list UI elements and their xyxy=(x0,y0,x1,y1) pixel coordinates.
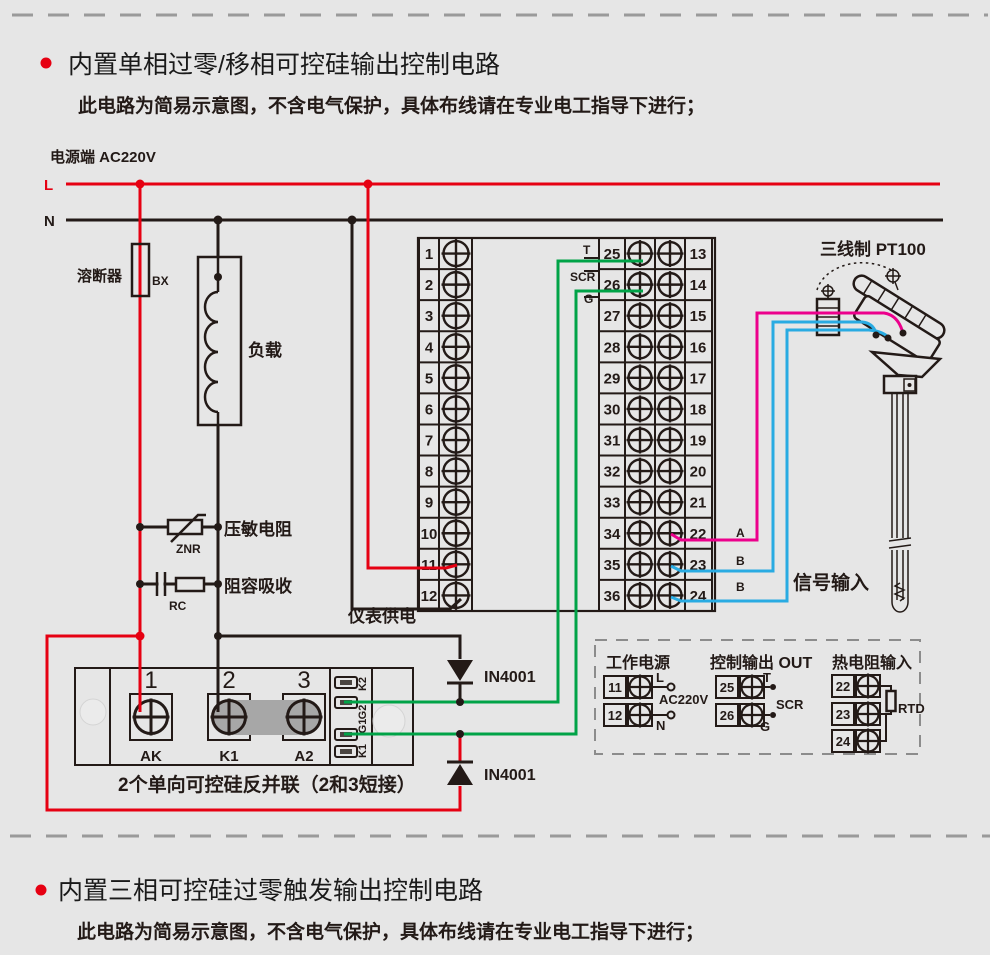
screw-terminal-icon xyxy=(627,520,654,547)
junction-dot xyxy=(364,180,373,189)
terminal-number-mid: 36 xyxy=(604,588,621,605)
terminal-number-right: 18 xyxy=(690,401,707,418)
legend-scr-label: SCR xyxy=(776,697,804,712)
screw-terminal-icon xyxy=(657,302,684,329)
signal-a-label: A xyxy=(736,526,745,540)
junction-dot xyxy=(214,580,222,588)
screw-terminal-icon xyxy=(657,582,684,609)
wires-layer xyxy=(47,184,943,810)
section1-bullet-icon xyxy=(41,58,52,69)
power-source-label: 电源端 AC220V xyxy=(50,148,156,166)
terminal-number-mid: 27 xyxy=(604,308,621,325)
scr-module: 1 2 3 AK K1 A2 K2 G2 G1 K1 xyxy=(75,667,413,765)
screw-terminal-icon xyxy=(442,519,471,548)
module-terminal-2: 2 xyxy=(222,667,235,694)
fuse-code-label: BX xyxy=(152,274,169,288)
junction-dot xyxy=(348,216,357,225)
screw-terminal-icon xyxy=(821,284,835,298)
screw-terminal-icon xyxy=(442,239,471,268)
signal-b2-label: B xyxy=(736,580,745,594)
rc-snubber-icon xyxy=(157,572,204,596)
screw-terminal-icon xyxy=(856,729,881,754)
junction-dot xyxy=(873,332,880,339)
terminal-number-left: 2 xyxy=(425,277,433,294)
section2-title: 内置三相可控硅过零触发输出控制电路 xyxy=(58,877,483,905)
section2-subtitle: 此电路为简易示意图，不含电气保护，具体布线请在专业电工指导下进行； xyxy=(77,920,704,943)
legend-rtd-title: 热电阻输入 xyxy=(832,653,912,672)
line-n-label: N xyxy=(44,213,55,230)
screw-terminal-icon xyxy=(627,271,654,298)
screw-terminal-icon xyxy=(627,458,654,485)
screw-terminal-icon xyxy=(856,674,881,699)
junction-dot xyxy=(456,730,464,738)
terminal-number-left: 6 xyxy=(425,401,433,418)
screw-terminal-icon xyxy=(657,364,684,391)
terminal-number-right: 14 xyxy=(690,277,707,294)
terminal-number-left: 10 xyxy=(421,526,438,543)
screw-terminal-icon xyxy=(657,395,684,422)
junction-dot xyxy=(214,632,222,640)
module-ak-label: AK xyxy=(140,748,162,765)
module-mount-hole xyxy=(373,705,405,737)
terminal-number-left: 11 xyxy=(421,557,437,574)
screw-terminal-icon xyxy=(627,551,654,578)
screw-terminal-icon xyxy=(657,240,684,267)
diode1-label: IN4001 xyxy=(484,669,536,686)
terminal-number-mid: 28 xyxy=(604,339,621,356)
screw-terminal-icon xyxy=(856,702,881,727)
screw-terminal-icon xyxy=(627,395,654,422)
module-k1-label: K1 xyxy=(219,748,238,765)
terminal-number-mid: 32 xyxy=(604,464,621,481)
screw-terminal-icon xyxy=(627,333,654,360)
legend-voltage-label: AC220V xyxy=(659,692,708,707)
screw-terminal-icon xyxy=(657,271,684,298)
screw-terminal-icon xyxy=(657,520,684,547)
screw-terminal-icon xyxy=(442,426,471,455)
screw-terminal-icon xyxy=(442,488,471,517)
legend-t-label: T xyxy=(763,670,771,685)
screw-terminal-icon xyxy=(442,457,471,486)
screw-terminal-icon xyxy=(442,363,471,392)
load-label: 负载 xyxy=(248,340,282,360)
terminal-number-mid: 34 xyxy=(604,526,621,543)
section2-bullet-icon xyxy=(36,885,47,896)
module-terminal-1: 1 xyxy=(144,667,157,694)
screw-terminal-icon xyxy=(740,675,765,700)
signal-input-label: 信号输入 xyxy=(793,571,869,594)
varistor-icon xyxy=(168,515,206,542)
legend-term-24: 24 xyxy=(836,734,851,749)
wire-diode1-branch xyxy=(218,636,460,659)
legend-term-26: 26 xyxy=(720,708,734,723)
junction-dot xyxy=(136,580,144,588)
terminal-number-right: 20 xyxy=(690,464,707,481)
diode1-icon xyxy=(447,660,473,683)
screw-terminal-icon xyxy=(442,394,471,423)
junction-dot xyxy=(900,330,907,337)
terminal-number-left: 1 xyxy=(425,246,433,263)
screw-terminal-icon xyxy=(628,675,653,700)
legend-output-title: 控制输出 OUT xyxy=(710,653,812,672)
terminal-number-right: 17 xyxy=(690,370,707,387)
terminal-number-right: 19 xyxy=(690,433,707,450)
output-scr-label: SCR xyxy=(570,270,596,284)
diode2-icon xyxy=(447,762,473,785)
legend-term-12: 12 xyxy=(608,708,622,723)
line-l-label: L xyxy=(44,177,53,194)
legend-n-terminal-icon xyxy=(668,712,675,719)
section1-title: 内置单相过零/移相可控硅输出控制电路 xyxy=(68,51,500,79)
terminal-number-left: 12 xyxy=(421,588,438,605)
rc-code-label: RC xyxy=(169,599,187,613)
output-g-label: G xyxy=(584,292,593,306)
terminal-number-right: 15 xyxy=(690,308,707,325)
diagram-static-layer: 内置单相过零/移相可控硅输出控制电路 此电路为简易示意图，不含电气保护，具体布线… xyxy=(10,15,990,943)
junction-dot xyxy=(456,698,464,706)
circuit-diagram: 内置单相过零/移相可控硅输出控制电路 此电路为简易示意图，不含电气保护，具体布线… xyxy=(0,0,990,955)
module-g1-label: G1 xyxy=(357,719,369,734)
terminal-number-mid: 30 xyxy=(604,401,621,418)
signal-b1-label: B xyxy=(736,554,745,568)
terminal-number-right: 16 xyxy=(690,339,707,356)
terminal-number-mid: 33 xyxy=(604,495,621,512)
junction-dot xyxy=(136,180,145,189)
varistor-code-label: ZNR xyxy=(176,542,201,556)
terminal-number-right: 13 xyxy=(690,246,707,263)
terminal-number-mid: 29 xyxy=(604,370,621,387)
rc-label: 阻容吸收 xyxy=(224,576,292,596)
wiring-diagram-page: 内置单相过零/移相可控硅输出控制电路 此电路为简易示意图，不含电气保护，具体布线… xyxy=(0,0,990,955)
screw-terminal-icon xyxy=(885,268,901,284)
output-t-label: T xyxy=(583,243,591,257)
screw-terminal-icon xyxy=(627,240,654,267)
screw-terminal-icon xyxy=(627,489,654,516)
module-k1-side-label: K1 xyxy=(357,744,369,758)
module-a2-label: A2 xyxy=(294,748,313,765)
legend-l-label: L xyxy=(656,670,664,685)
module-screws xyxy=(133,699,323,736)
legend-rtd-label: RTD xyxy=(898,701,925,716)
main-terminal-block: 1251322614327154281652917630187311983220… xyxy=(418,238,715,611)
legend-n-label: N xyxy=(656,718,665,733)
screw-terminal-icon xyxy=(657,551,684,578)
junction-dot xyxy=(136,523,144,531)
fuse-label: 溶断器 xyxy=(77,267,123,285)
section1-subtitle: 此电路为简易示意图，不含电气保护，具体布线请在专业电工指导下进行； xyxy=(78,94,705,117)
sensor-probe xyxy=(889,393,911,612)
legend-term-25: 25 xyxy=(720,680,734,695)
terminal-number-left: 9 xyxy=(425,495,433,512)
junction-dot xyxy=(214,523,222,531)
legend-term-11: 11 xyxy=(608,680,622,695)
terminal-number-mid: 31 xyxy=(604,433,621,450)
screw-terminal-icon xyxy=(627,302,654,329)
terminal-number-left: 4 xyxy=(425,339,434,356)
screw-terminal-icon xyxy=(627,582,654,609)
module-k2-label: K2 xyxy=(357,677,369,691)
load-inductor-icon xyxy=(198,257,241,425)
resistor-icon xyxy=(176,578,204,591)
screw-terminal-icon xyxy=(133,699,170,736)
junction-dot xyxy=(885,335,892,342)
terminal-number-left: 5 xyxy=(425,370,433,387)
pt100-title: 三线制 PT100 xyxy=(820,239,926,259)
screw-terminal-icon xyxy=(657,427,684,454)
legend-panel: 工作电源 控制输出 OUT 热电阻输入 11 12 L AC220V N 25 … xyxy=(595,640,925,754)
terminal-number-mid: 35 xyxy=(604,557,621,574)
module-caption: 2个单向可控硅反并联（2和3短接） xyxy=(118,773,416,796)
pt100-sensor-icon xyxy=(817,263,947,612)
legend-term-22: 22 xyxy=(836,679,850,694)
screw-terminal-icon xyxy=(442,270,471,299)
legend-l-terminal-icon xyxy=(668,684,675,691)
terminal-number-left: 3 xyxy=(425,308,433,325)
legend-rtd-resistor-icon xyxy=(887,691,896,711)
screw-terminal-icon xyxy=(657,489,684,516)
junction-dot xyxy=(136,632,145,641)
varistor-label: 压敏电阻 xyxy=(224,519,292,539)
terminal-number-left: 8 xyxy=(425,464,433,481)
terminal-number-left: 7 xyxy=(425,433,433,450)
junction-dot xyxy=(214,216,223,225)
screw-terminal-icon xyxy=(628,703,653,728)
screw-terminal-icon xyxy=(657,458,684,485)
screw-terminal-icon xyxy=(627,427,654,454)
terminal-number-right: 21 xyxy=(690,495,707,512)
screw-terminal-icon xyxy=(627,364,654,391)
module-mount-hole xyxy=(80,699,106,725)
diode2-label: IN4001 xyxy=(484,767,536,784)
screw-terminal-icon xyxy=(657,333,684,360)
legend-g-terminal-icon xyxy=(770,712,776,718)
legend-term-23: 23 xyxy=(836,707,850,722)
screw-terminal-icon xyxy=(442,332,471,361)
module-g2-label: G2 xyxy=(357,705,369,720)
screw-terminal-icon xyxy=(442,301,471,330)
module-terminal-3: 3 xyxy=(297,667,310,694)
